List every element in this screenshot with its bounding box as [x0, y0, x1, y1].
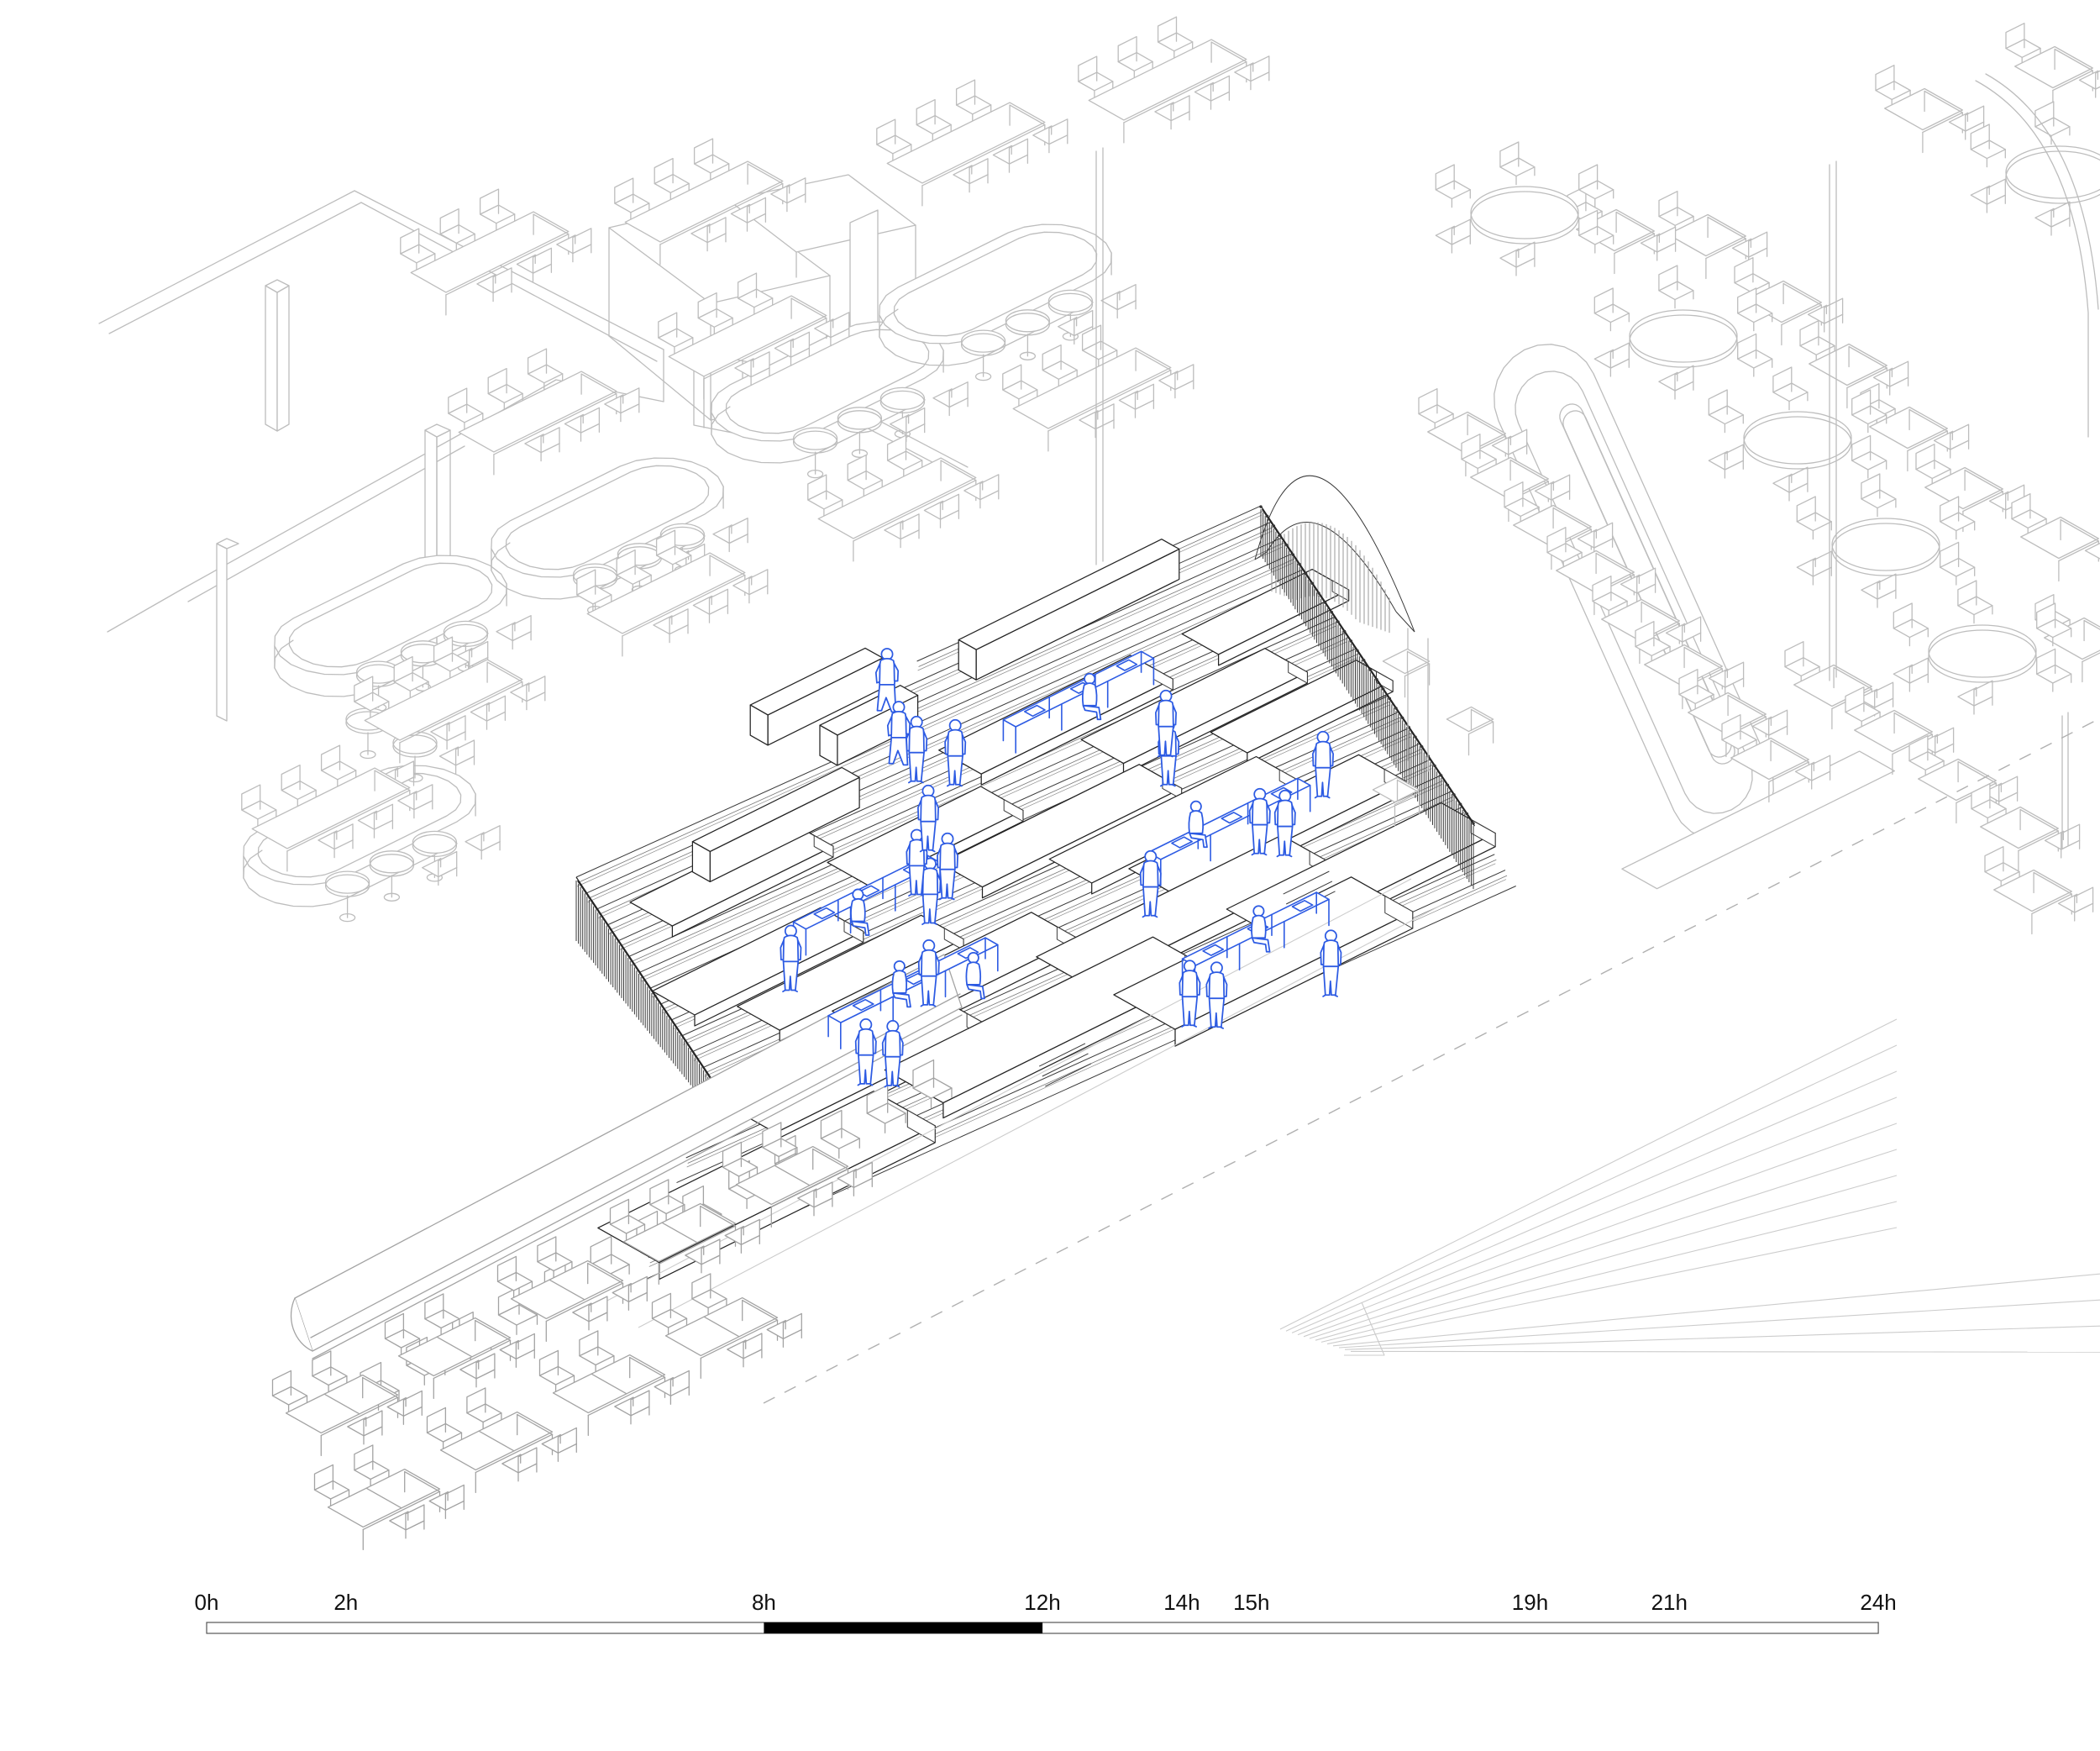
svg-text:0h: 0h: [195, 1590, 219, 1615]
svg-text:12h: 12h: [1024, 1590, 1060, 1615]
svg-text:14h: 14h: [1163, 1590, 1200, 1615]
svg-text:15h: 15h: [1233, 1590, 1269, 1615]
svg-text:2h: 2h: [333, 1590, 358, 1615]
svg-text:24h: 24h: [1860, 1590, 1896, 1615]
svg-text:8h: 8h: [752, 1590, 776, 1615]
svg-text:21h: 21h: [1651, 1590, 1688, 1615]
svg-text:19h: 19h: [1512, 1590, 1548, 1615]
